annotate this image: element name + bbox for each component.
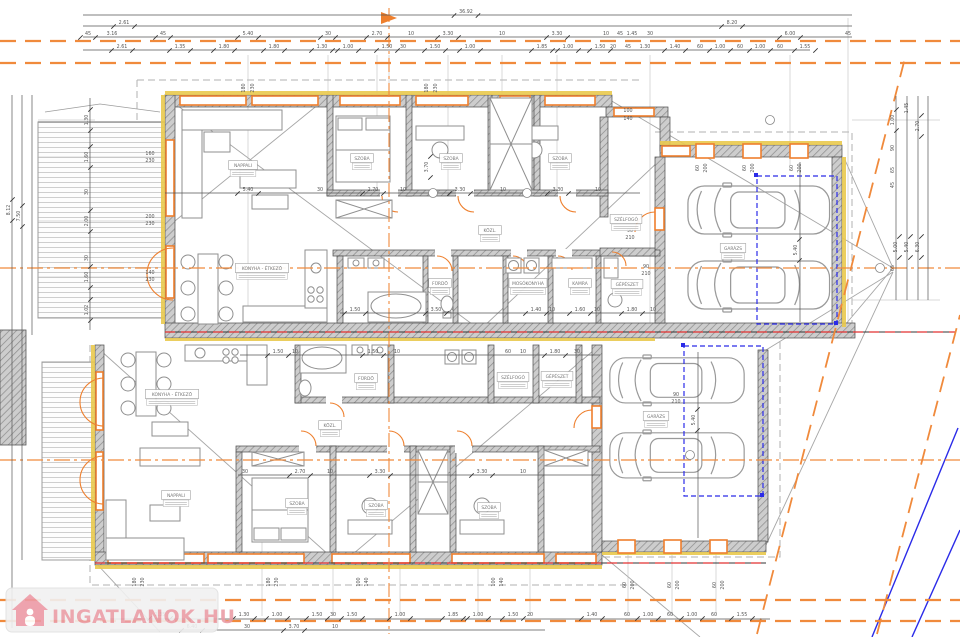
- car-top-view: [688, 183, 830, 237]
- floorplan-drawing: 36.922.618.20453.16455.40302.70103.30103…: [0, 0, 960, 637]
- dimension-label: 45: [617, 31, 623, 37]
- dimension-tick: [422, 48, 426, 52]
- dimension-tick: [567, 311, 571, 315]
- dimension-tick: [435, 35, 439, 39]
- dimension-label: 140: [623, 116, 632, 122]
- dimension-label: 60: [667, 582, 673, 588]
- dimension-tick: [476, 13, 480, 17]
- dimension-label: 3.50: [431, 307, 442, 313]
- room-label: GÉPÉSZET: [541, 372, 573, 388]
- dimension-label: 200: [797, 163, 803, 172]
- room-label: SZÉLFOGÓ: [610, 215, 642, 231]
- dimension-label: 30: [84, 189, 90, 195]
- dimension-tick: [798, 35, 802, 39]
- dimension-label: 160: [145, 151, 154, 157]
- room-area-box: [287, 508, 307, 515]
- dimension-tick: [188, 48, 192, 52]
- dimension-label: 90: [673, 392, 679, 398]
- room-name: NAPPALI: [234, 163, 252, 169]
- dimension-label: 1.40: [587, 612, 598, 618]
- dimension-label: 200: [750, 163, 756, 172]
- dimension-tick: [10, 218, 14, 222]
- dimension-label: 1.45: [904, 103, 910, 114]
- dimension-label: 1.40: [670, 44, 681, 50]
- dimension-tick: [728, 48, 732, 52]
- room-area-box: [613, 289, 642, 296]
- dimension-tick: [588, 311, 592, 315]
- room-label: GARÁZS: [643, 412, 669, 428]
- dimension-label: 210: [641, 271, 650, 277]
- dimension-label: 10: [292, 349, 298, 355]
- dimension-label: 180: [241, 83, 247, 92]
- dimension-tick: [662, 48, 666, 52]
- dimension-label: 180: [424, 83, 430, 92]
- dimension-label: 230: [274, 577, 280, 586]
- dimension-label: 230: [145, 221, 154, 227]
- dimension-label: 3.30: [477, 469, 488, 475]
- dimension-label: 1.00: [755, 44, 766, 50]
- room-label: SZOBA: [478, 503, 501, 519]
- dimension-tick: [428, 154, 432, 158]
- walls: [95, 95, 855, 565]
- room-label: FÜRDŐ: [429, 279, 452, 295]
- dimension-label: 45: [85, 31, 91, 37]
- dimension-tick: [302, 628, 306, 632]
- room-name: KÖZL.: [324, 422, 337, 429]
- room-label: SZOBA: [440, 154, 463, 170]
- dimension-label: 100: [356, 577, 362, 586]
- dimension-tick: [919, 113, 923, 117]
- dimension-label: 210: [625, 235, 634, 241]
- dimension-label: 60: [711, 612, 717, 618]
- room-label: KONYHA - ÉTKEZŐ: [235, 264, 289, 280]
- dimension-tick: [768, 48, 772, 52]
- room-area-box: [645, 421, 668, 428]
- dimension-label: 30: [574, 349, 580, 355]
- dimension-tick: [168, 35, 172, 39]
- dimension-tick: [640, 311, 644, 315]
- dimension-tick: [908, 234, 912, 238]
- dimension-label: 10: [594, 307, 600, 313]
- dimension-label: 10: [603, 31, 609, 37]
- dimension-label: 30: [400, 44, 406, 50]
- dimension-label: 1.00: [563, 44, 574, 50]
- room-name: SZOBA: [354, 156, 369, 162]
- dimension-tick: [792, 48, 796, 52]
- dimension-label: 1.30: [84, 115, 90, 126]
- dimension-tick: [897, 255, 901, 259]
- room-area-box: [320, 430, 340, 437]
- room-label: SZOBA: [549, 154, 572, 170]
- dimension-label: 1.00: [465, 44, 476, 50]
- dimension-tick: [167, 48, 171, 52]
- room-area-box: [722, 253, 745, 260]
- dimension-label: 1.60: [84, 272, 90, 283]
- dimension-tick: [797, 237, 801, 241]
- dimension-label: 1.00: [687, 612, 698, 618]
- dimension-tick: [813, 48, 817, 52]
- dimension-tick: [356, 48, 360, 52]
- dimension-label: 10: [595, 187, 601, 193]
- room-area-box: [480, 235, 500, 242]
- dimension-label: 200: [630, 580, 636, 589]
- dimension-tick: [309, 48, 313, 52]
- dimension-tick: [130, 48, 134, 52]
- dimension-label: 1.50: [368, 349, 379, 355]
- dimension-label: 8.12: [6, 205, 12, 216]
- dimension-tick: [555, 48, 559, 52]
- dimension-label: 1.30: [239, 612, 250, 618]
- dimension-label: 1.60: [84, 152, 90, 163]
- room-name: KÖZL.: [484, 227, 497, 234]
- dimension-label: 1.30: [640, 44, 651, 50]
- room-area-box: [543, 381, 572, 388]
- dimension-tick: [440, 616, 444, 620]
- dimension-label: 1.85: [537, 44, 548, 50]
- dimension-tick: [919, 134, 923, 138]
- dimension-label: 1.50: [382, 44, 393, 50]
- dimension-label: 100: [623, 108, 632, 114]
- dimension-label: 1.00: [272, 612, 283, 618]
- dimension-tick: [308, 473, 312, 477]
- dimension-label: 10: [332, 624, 338, 630]
- dimension-label: 60: [695, 165, 701, 171]
- room-area-box: [499, 382, 528, 389]
- car-top-view: [610, 430, 744, 481]
- dimension-tick: [719, 24, 723, 28]
- dimension-label: 36.92: [459, 9, 473, 15]
- room-name: KAMRA: [572, 281, 587, 287]
- dimension-label: 1.40: [531, 307, 542, 313]
- dimension-label: 230: [145, 158, 154, 164]
- room-area-box: [237, 273, 288, 280]
- dimension-label: 230: [145, 277, 154, 283]
- dimension-label: 60: [624, 612, 630, 618]
- dimension-tick: [330, 48, 334, 52]
- dimension-label: 65: [890, 167, 896, 173]
- dimension-label: 1.80: [627, 307, 638, 313]
- dimension-tick: [544, 35, 548, 39]
- dimension-label: 5.40: [691, 415, 697, 426]
- dimension-label: 2.61: [119, 20, 130, 26]
- dimension-tick: [465, 616, 469, 620]
- dimension-tick: [919, 234, 923, 238]
- dimension-label: 30: [244, 624, 250, 630]
- dimension-label: 1.80: [219, 44, 230, 50]
- dimension-label: 1.00: [890, 115, 896, 126]
- dimension-label: 1.35: [175, 44, 186, 50]
- room-area-box: [430, 288, 450, 295]
- dimension-tick: [587, 48, 591, 52]
- room-area-box: [230, 170, 256, 177]
- dimension-label: 1.00: [343, 44, 354, 50]
- dimension-tick: [318, 35, 322, 39]
- room-area-box: [366, 510, 386, 517]
- dimension-label: 45: [890, 182, 896, 188]
- dimension-label: 1.45: [627, 31, 638, 37]
- room-area-box: [612, 224, 641, 231]
- dimension-label: 6.30: [915, 242, 921, 253]
- dimension-label: 1.50: [508, 612, 519, 618]
- dimension-label: 1.55: [737, 612, 748, 618]
- dimension-label: 30: [330, 612, 336, 618]
- dimension-label: 230: [140, 577, 146, 586]
- dimension-label: 3.30: [552, 31, 563, 37]
- dimension-label: 10: [500, 187, 506, 193]
- dimension-tick: [565, 35, 569, 39]
- dimension-tick: [286, 353, 290, 357]
- dimension-label: 1.50: [347, 612, 358, 618]
- dimension-label: 10: [400, 187, 406, 193]
- dimension-label: 210: [671, 399, 680, 405]
- dimension-tick: [443, 48, 447, 52]
- dimension-label: 30: [647, 31, 653, 37]
- room-name: MOSÓKONYHA: [512, 280, 544, 287]
- room-area-box: [479, 512, 499, 519]
- dimension-label: 10: [520, 349, 526, 355]
- dimension-tick: [695, 407, 699, 411]
- room-label: KAMRA: [569, 279, 592, 295]
- dimension-label: 1.55: [800, 44, 811, 50]
- dimension-label: 1.30: [317, 44, 328, 50]
- dimension-tick: [339, 616, 343, 620]
- room-label: FÜRDŐ: [355, 374, 378, 390]
- dimension-label: 3.70: [424, 162, 430, 173]
- dimension-label: 2.70: [295, 469, 306, 475]
- dimension-label: 10: [408, 31, 414, 37]
- dimension-label: 60: [712, 582, 718, 588]
- dimension-label: 7.50: [16, 211, 22, 222]
- room-name: GARÁZS: [647, 413, 665, 420]
- dimension-tick: [261, 48, 265, 52]
- dimension-label: 5.40: [904, 242, 910, 253]
- dimension-label: 1.50: [595, 44, 606, 50]
- dimension-label: 200: [675, 580, 681, 589]
- dimension-tick: [523, 311, 527, 315]
- dimension-label: 1.00: [395, 612, 406, 618]
- dimension-tick: [388, 473, 392, 477]
- room-name: NAPPALI: [167, 493, 185, 499]
- room-area-box: [570, 288, 590, 295]
- dimension-label: 30: [325, 31, 331, 37]
- dimension-label: 90: [890, 145, 896, 151]
- dimension-label: 140: [499, 577, 505, 586]
- dimension-label: 230: [433, 83, 439, 92]
- dimension-tick: [457, 48, 461, 52]
- dimension-label: 60: [777, 44, 783, 50]
- dimension-label: 45: [845, 31, 851, 37]
- room-area-box: [550, 163, 570, 170]
- dimension-tick: [132, 24, 136, 28]
- room-name: GARÁZS: [724, 245, 742, 252]
- room-label: SZOBA: [286, 499, 309, 515]
- dimension-label: 2.70: [372, 31, 383, 37]
- dimension-label: 1.85: [448, 612, 459, 618]
- dimension-label: 1.50: [273, 349, 284, 355]
- dimension-label: 1.50: [312, 612, 323, 618]
- dimension-label: 8.20: [727, 20, 738, 26]
- room-name: SZOBA: [289, 501, 304, 507]
- dimension-tick: [428, 175, 432, 179]
- room-label: KÖZL.: [319, 421, 342, 437]
- dimension-label: 3.70: [289, 624, 300, 630]
- dimension-label: 100: [491, 577, 497, 586]
- room-name: SZOBA: [443, 156, 458, 162]
- dimension-tick: [469, 473, 473, 477]
- dimension-tick: [235, 35, 239, 39]
- room-label: GARÁZS: [720, 244, 746, 260]
- dimension-label: 180: [266, 577, 272, 586]
- dimension-tick: [235, 191, 239, 195]
- room-label: NAPPALI: [229, 161, 258, 177]
- dimension-tick: [88, 107, 92, 111]
- dimension-label: 5.40: [793, 245, 799, 256]
- dimension-tick: [364, 35, 368, 39]
- car-top-view: [610, 355, 744, 406]
- room-label: GÉPÉSZET: [611, 280, 643, 296]
- dimension-label: 230: [250, 83, 256, 92]
- dimension-label: 3.30: [553, 187, 564, 193]
- dimension-tick: [264, 616, 268, 620]
- dimension-label: 2.61: [117, 44, 128, 50]
- dimension-label: 10: [499, 31, 505, 37]
- dimension-tick: [367, 473, 371, 477]
- dimension-label: 5.00: [893, 242, 899, 253]
- dimension-label: 60: [789, 165, 795, 171]
- room-name: SZOBA: [368, 503, 383, 509]
- dimension-tick: [109, 48, 113, 52]
- dimension-label: 5.40: [243, 31, 254, 37]
- dimension-tick: [452, 13, 456, 17]
- room-label: SZOBA: [365, 501, 388, 517]
- room-label: SZÉLFOGÓ: [497, 373, 529, 389]
- room-name: FÜRDŐ: [358, 375, 374, 382]
- dimension-label: 1.50: [430, 44, 441, 50]
- dimension-tick: [478, 48, 482, 52]
- floorplan-page: 36.922.618.20453.16455.40302.70103.30103…: [0, 0, 960, 637]
- dimension-tick: [456, 35, 460, 39]
- dimension-label: 30: [317, 187, 323, 193]
- dimension-tick: [683, 48, 687, 52]
- dimension-label: 3.30: [443, 31, 454, 37]
- dimension-tick: [563, 353, 567, 357]
- dimension-label: 180: [132, 577, 138, 586]
- dimension-label: 60: [737, 44, 743, 50]
- terrace-upper: [38, 104, 165, 318]
- dimension-label: 200: [703, 163, 709, 172]
- dimension-tick: [490, 473, 494, 477]
- dimension-tick: [20, 203, 24, 207]
- room-name: SZOBA: [552, 156, 567, 162]
- dimension-tick: [232, 48, 236, 52]
- dimension-label: 3.30: [455, 187, 466, 193]
- dimension-tick: [88, 318, 92, 322]
- dimension-tick: [10, 197, 14, 201]
- dimension-tick: [374, 48, 378, 52]
- dimension-tick: [529, 48, 533, 52]
- dimension-label: 60: [505, 349, 511, 355]
- dimension-label: 1.60: [575, 307, 586, 313]
- dimension-label: 1.80: [269, 44, 280, 50]
- room-label: KÖZL.: [479, 226, 502, 242]
- dimension-label: 90: [643, 264, 649, 270]
- dimension-tick: [111, 24, 115, 28]
- dimension-tick: [576, 48, 580, 52]
- dimension-tick: [211, 48, 215, 52]
- room-label: KONYHA - ÉTKEZŐ: [145, 390, 199, 406]
- dimension-label: 30: [84, 255, 90, 261]
- dimension-tick: [153, 35, 157, 39]
- dimension-label: 45: [625, 44, 631, 50]
- dimension-label: 2.70: [368, 187, 379, 193]
- dimension-label: 1.00: [473, 612, 484, 618]
- dimension-tick: [335, 48, 339, 52]
- dimension-label: 2.70: [915, 121, 921, 132]
- dimension-tick: [908, 255, 912, 259]
- room-label: SZOBA: [351, 154, 374, 170]
- dimension-label: 1.00: [643, 612, 654, 618]
- dimension-label: 20: [610, 44, 616, 50]
- dimension-tick: [282, 48, 286, 52]
- dimension-label: 1.02: [84, 305, 90, 316]
- room-area-box: [356, 383, 376, 390]
- dimension-tick: [894, 107, 898, 111]
- room-name: SZOBA: [481, 505, 496, 511]
- dimension-label: 140: [364, 577, 370, 586]
- dimension-tick: [894, 128, 898, 132]
- dimension-label: 200: [145, 214, 154, 220]
- dimension-tick: [287, 473, 291, 477]
- dimension-label: 5.40: [243, 187, 254, 193]
- dimension-tick: [78, 35, 82, 39]
- dimension-label: 10: [520, 469, 526, 475]
- room-area-box: [511, 288, 546, 295]
- dimension-label: 6.00: [785, 31, 796, 37]
- furniture-upper: [181, 98, 622, 324]
- room-area-box: [147, 399, 198, 406]
- dimension-tick: [281, 628, 285, 632]
- dimension-tick: [93, 35, 97, 39]
- dimension-tick: [747, 48, 751, 52]
- dimension-label: 1.80: [550, 349, 561, 355]
- dimension-label: 65: [890, 265, 896, 271]
- dimension-label: 10: [650, 307, 656, 313]
- watermark-text: INGATLANOK.HU: [52, 606, 235, 628]
- dimension-tick: [550, 48, 554, 52]
- dimension-label: 10: [549, 307, 555, 313]
- dimension-label: 60: [622, 582, 628, 588]
- room-area-box: [441, 163, 461, 170]
- dimension-tick: [919, 255, 923, 259]
- dimension-label: 1.00: [715, 44, 726, 50]
- dimension-label: 1.50: [350, 307, 361, 313]
- room-area-box: [352, 163, 372, 170]
- dimension-label: 45: [160, 31, 166, 37]
- dimension-label: 60: [667, 612, 673, 618]
- dimension-tick: [363, 311, 367, 315]
- dimension-label: 200: [720, 580, 726, 589]
- dimension-label: 3.16: [107, 31, 118, 37]
- dimension-label: 10: [327, 469, 333, 475]
- dimension-tick: [695, 428, 699, 432]
- room-name: FÜRDŐ: [432, 280, 448, 287]
- car-top-view: [688, 258, 830, 312]
- dimension-label: 3.30: [375, 469, 386, 475]
- dimension-tick: [619, 311, 623, 315]
- dimension-label: 60: [742, 165, 748, 171]
- room-label: NAPPALI: [162, 491, 191, 507]
- dimension-label: 2.00: [84, 216, 90, 227]
